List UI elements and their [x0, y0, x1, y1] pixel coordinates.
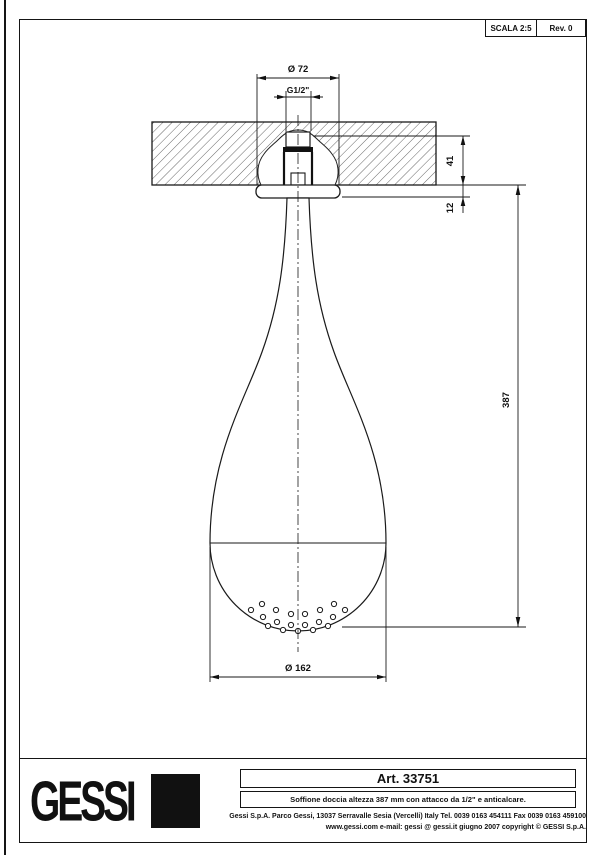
- footer-line-2: www.gessi.com e-mail: gessi @ gessi.it g…: [200, 823, 586, 834]
- dim-label-embed-depth: 41: [445, 155, 456, 166]
- description-text: Soffione doccia altezza 387 mm con attac…: [290, 795, 526, 804]
- dim-label-top-diameter: Ø 72: [288, 64, 309, 75]
- arrow-icon: [516, 185, 521, 195]
- article-number: Art. 33751: [377, 771, 439, 786]
- dim-label-total-height: 387: [501, 392, 512, 408]
- arrow-icon: [461, 197, 466, 206]
- gessi-logo-text: GESSI: [30, 770, 134, 832]
- footer: Gessi S.p.A. Parco Gessi, 13037 Serraval…: [200, 812, 586, 833]
- gessi-logo-block: [151, 774, 200, 828]
- arrow-icon: [210, 675, 219, 680]
- arrow-icon: [277, 95, 286, 100]
- arrow-icon: [311, 95, 320, 100]
- arrow-icon: [377, 675, 386, 680]
- arrow-icon: [330, 76, 339, 81]
- shower-head-drawing: Ø 72 G1/2" 41 12 387 Ø 162: [0, 0, 606, 760]
- drawing-sheet: SCALA 2:5 Rev. 0: [0, 0, 606, 855]
- dim-label-flange-height: 12: [445, 203, 456, 214]
- description-box: Soffione doccia altezza 387 mm con attac…: [240, 791, 576, 808]
- footer-line-1: Gessi S.p.A. Parco Gessi, 13037 Serraval…: [200, 812, 586, 823]
- article-number-box: Art. 33751: [240, 769, 576, 788]
- arrow-icon: [461, 176, 466, 185]
- arrow-icon: [516, 617, 521, 627]
- dim-label-head-diameter: Ø 162: [285, 663, 311, 674]
- arrow-icon: [461, 136, 466, 145]
- title-block-separator: [19, 758, 586, 759]
- arrow-icon: [257, 76, 266, 81]
- dim-label-thread: G1/2": [287, 85, 309, 95]
- gessi-logo: GESSI: [30, 770, 200, 832]
